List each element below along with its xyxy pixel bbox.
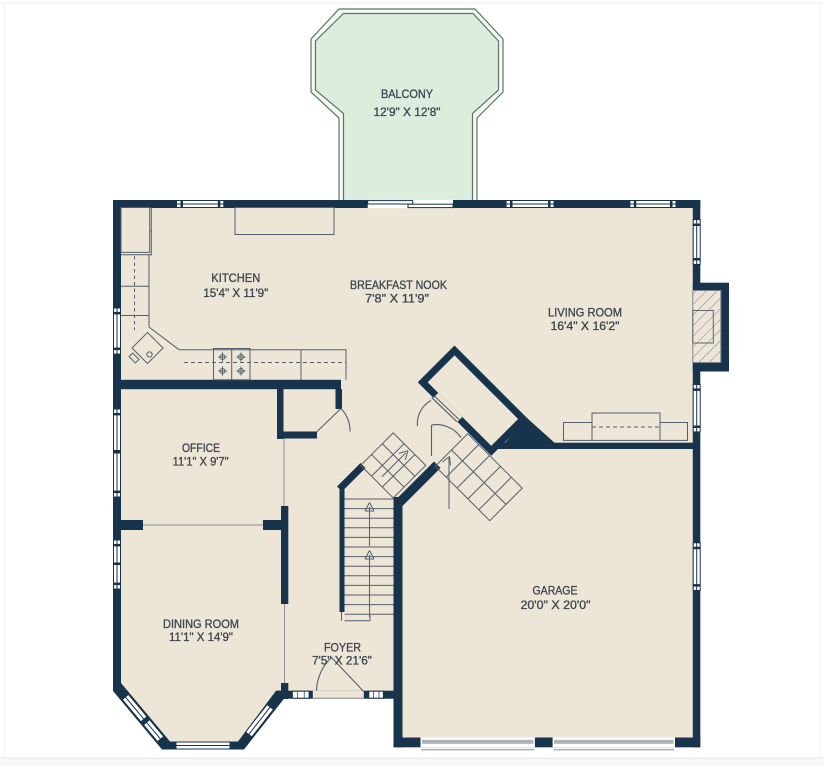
svg-text:15'4" X 11'9": 15'4" X 11'9" xyxy=(203,286,268,300)
svg-text:LIVING ROOM: LIVING ROOM xyxy=(548,306,622,320)
svg-text:16'4" X 16'2": 16'4" X 16'2" xyxy=(551,319,620,333)
svg-text:11'1" X 14'9": 11'1" X 14'9" xyxy=(169,630,233,644)
svg-text:BREAKFAST NOOK: BREAKFAST NOOK xyxy=(350,278,447,292)
svg-text:FOYER: FOYER xyxy=(324,641,361,655)
svg-text:20'0" X 20'0": 20'0" X 20'0" xyxy=(521,598,591,612)
svg-text:7'8" X 11'9": 7'8" X 11'9" xyxy=(365,292,429,306)
svg-text:11'1" X 9'7": 11'1" X 9'7" xyxy=(173,455,229,469)
svg-text:GARAGE: GARAGE xyxy=(533,584,578,598)
svg-text:BALCONY: BALCONY xyxy=(381,87,433,101)
svg-text:KITCHEN: KITCHEN xyxy=(211,271,260,285)
svg-text:DINING ROOM: DINING ROOM xyxy=(163,617,239,631)
svg-text:OFFICE: OFFICE xyxy=(182,441,220,455)
svg-text:12'9" X 12'8": 12'9" X 12'8" xyxy=(374,105,441,119)
svg-text:7'5" X 21'6": 7'5" X 21'6" xyxy=(312,654,372,668)
